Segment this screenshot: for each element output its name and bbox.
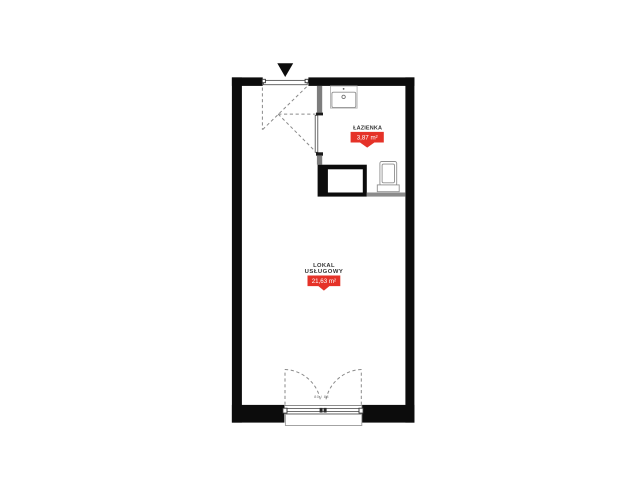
svg-text:LOKAL: LOKAL bbox=[313, 263, 335, 269]
svg-text:21,63 m²: 21,63 m² bbox=[312, 278, 336, 285]
svg-text:ŁAZIENKA: ŁAZIENKA bbox=[353, 126, 382, 132]
svg-text:80 / 88: 80 / 88 bbox=[314, 394, 329, 399]
svg-text:3,87 m²: 3,87 m² bbox=[357, 135, 378, 142]
svg-text:USŁUGOWY: USŁUGOWY bbox=[305, 269, 344, 275]
